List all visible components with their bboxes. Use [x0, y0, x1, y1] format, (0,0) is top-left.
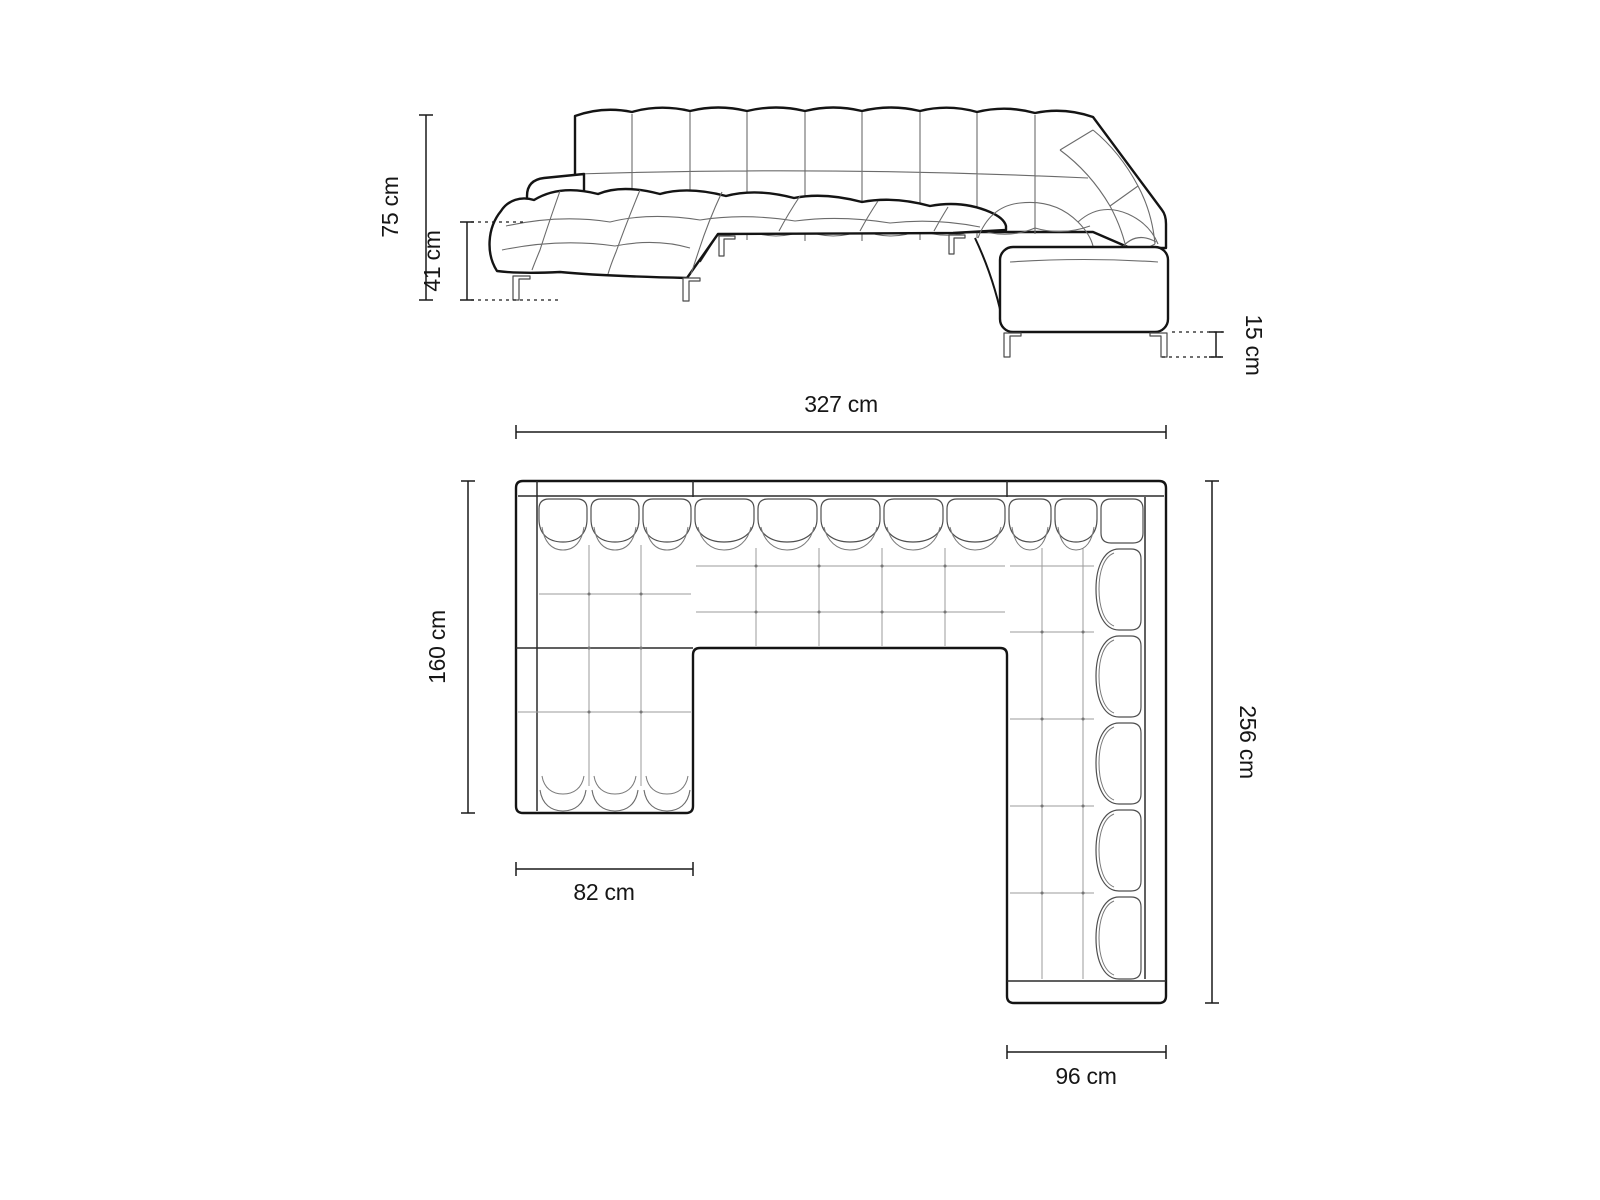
dim-width-327: 327 cm: [516, 391, 1166, 439]
elevation-view: 75 cm 41 cm 15 cm: [377, 108, 1267, 376]
dim-label-return-width-96: 96 cm: [1055, 1063, 1116, 1089]
dim-label-leg-height-15: 15 cm: [1241, 314, 1267, 375]
plan-backrest-cushions-right: [1096, 549, 1141, 979]
elevation-return-leg-left: [1004, 333, 1021, 357]
dim-return-width-96: 96 cm: [1007, 1045, 1166, 1089]
elevation-middle-leg-left: [719, 236, 735, 256]
elevation-return-leg-right: [1150, 333, 1167, 357]
dim-chaise-width-82: 82 cm: [516, 862, 693, 905]
dim-depth-256: 256 cm: [1205, 481, 1261, 1003]
dim-label-width-327: 327 cm: [804, 391, 878, 417]
elevation-middle-leg-right: [949, 235, 965, 254]
plan-outline: [516, 481, 1166, 1003]
dim-leg-height-15: 15 cm: [1162, 314, 1267, 375]
dim-label-chaise-depth-160: 160 cm: [424, 610, 450, 684]
plan-view: 327 cm 160 cm 256 cm 82 cm 96 cm: [424, 391, 1261, 1089]
dim-chaise-depth-160: 160 cm: [424, 481, 475, 813]
dim-label-seat-height-41: 41 cm: [419, 230, 445, 291]
sofa-dimension-diagram: 75 cm 41 cm 15 cm: [0, 0, 1600, 1200]
dim-label-chaise-width-82: 82 cm: [573, 879, 634, 905]
elevation-middle-base: [700, 233, 953, 262]
elevation-chaise-leg-right: [683, 278, 700, 301]
elevation-chaise-leg-left: [513, 276, 530, 300]
dim-label-height-75: 75 cm: [377, 176, 403, 237]
dim-label-depth-256: 256 cm: [1235, 705, 1261, 779]
